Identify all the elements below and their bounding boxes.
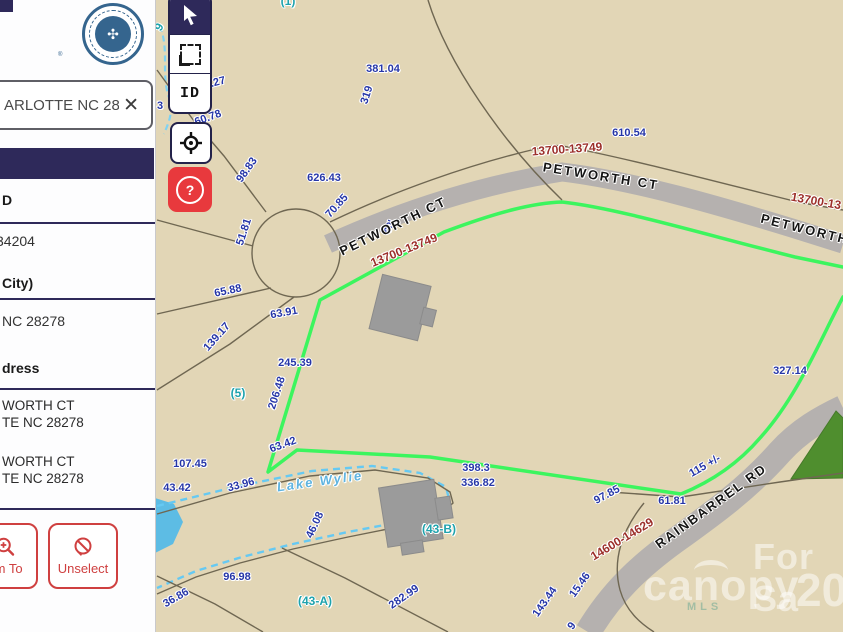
address-line: WORTH CT (2, 453, 155, 470)
divider (0, 222, 155, 224)
mecklenburg-county-seal: ✣ (82, 3, 144, 65)
address-item: WORTH CT TE NC 28278 (0, 397, 155, 431)
search-input[interactable] (0, 96, 121, 115)
zoom-to-button[interactable]: om To (0, 523, 38, 589)
locate-target-icon (178, 130, 204, 156)
unselect-label: Unselect (58, 561, 109, 576)
locate-me-button[interactable] (170, 122, 212, 164)
divider (0, 298, 155, 300)
pointer-tool-button[interactable] (170, 0, 210, 34)
select-tool-group: ID (168, 0, 212, 114)
id-tool-label: ID (180, 85, 200, 102)
divider (0, 388, 155, 390)
address-item: WORTH CT TE NC 28278 (0, 453, 155, 487)
field-label: dress (0, 360, 155, 376)
road-rainbarrel-rd (588, 408, 843, 632)
parcel-boundary-lines (157, 0, 843, 632)
help-button[interactable]: ? (168, 167, 212, 212)
unselect-icon (71, 536, 95, 558)
question-mark-icon: ? (176, 176, 204, 204)
seal-crest: ✣ (95, 16, 131, 52)
divider (0, 508, 155, 510)
address-line: TE NC 28278 (2, 470, 155, 487)
selected-parcel-highlight (268, 202, 843, 494)
marquee-icon (180, 44, 201, 65)
building-footprints (369, 274, 458, 557)
address-search-box: ✕ (0, 80, 153, 130)
corner-menu-fragment[interactable] (0, 0, 13, 12)
sidebar-panel: ✣ ® ✕ D 34204 City) NC 28278 dress WORTH… (0, 0, 156, 632)
zoom-in-icon (0, 536, 16, 558)
identify-tool-button[interactable]: ID (170, 73, 210, 112)
marquee-select-tool-button[interactable] (170, 34, 210, 73)
registered-mark: ® (58, 52, 62, 58)
field-value: NC 28278 (0, 313, 155, 329)
panel-header-bar (0, 148, 154, 179)
cursor-arrow-icon (180, 3, 200, 27)
unselect-button[interactable]: Unselect (48, 523, 118, 589)
address-line: WORTH CT (2, 397, 155, 414)
gis-parcel-viewer: For Sa canopy MLS 20 381.04319610.54626.… (0, 0, 843, 632)
field-label: City) (0, 275, 155, 291)
address-line: TE NC 28278 (2, 414, 155, 431)
road-petworth-ct (328, 172, 843, 244)
field-value: 34204 (0, 233, 149, 249)
zoom-to-label: om To (0, 561, 23, 576)
clear-search-icon[interactable]: ✕ (121, 94, 151, 117)
field-label: D (0, 192, 155, 208)
